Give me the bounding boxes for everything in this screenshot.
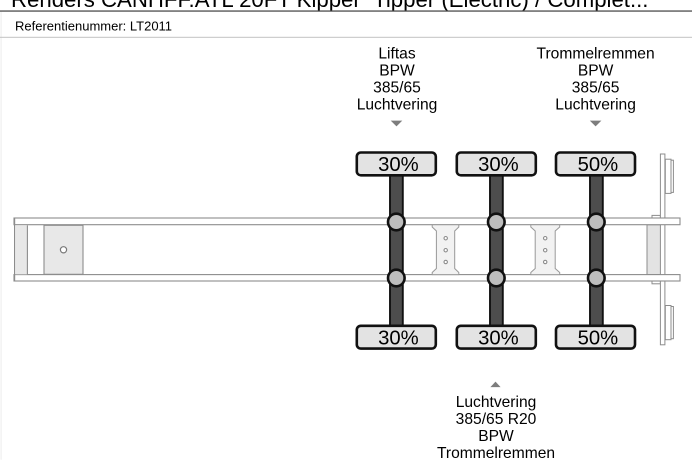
svg-text:385/65: 385/65	[373, 80, 421, 97]
svg-text:Luchtvering: Luchtvering	[357, 97, 438, 114]
svg-text:BPW: BPW	[578, 63, 614, 80]
svg-text:385/65: 385/65	[572, 80, 620, 97]
svg-text:Liftas: Liftas	[378, 46, 415, 63]
svg-text:30%: 30%	[478, 328, 519, 350]
svg-text:Referentienummer: LT2011: Referentienummer: LT2011	[15, 19, 172, 34]
svg-text:BPW: BPW	[478, 428, 514, 445]
svg-text:Trommelremmen: Trommelremmen	[437, 445, 555, 460]
svg-text:30%: 30%	[378, 154, 419, 176]
svg-text:Renders CANHFF.ATL 20FT Kipper: Renders CANHFF.ATL 20FT Kipper Tipper (E…	[11, 0, 648, 12]
svg-text:385/65 R20: 385/65 R20	[456, 411, 537, 428]
svg-text:BPW: BPW	[379, 63, 415, 80]
svg-text:30%: 30%	[378, 328, 419, 350]
svg-text:Luchtvering: Luchtvering	[555, 97, 636, 114]
svg-text:50%: 50%	[578, 328, 619, 350]
svg-text:50%: 50%	[578, 154, 619, 176]
svg-text:Luchtvering: Luchtvering	[456, 394, 537, 411]
svg-text:30%: 30%	[478, 154, 519, 176]
svg-text:Trommelremmen: Trommelremmen	[537, 46, 655, 63]
